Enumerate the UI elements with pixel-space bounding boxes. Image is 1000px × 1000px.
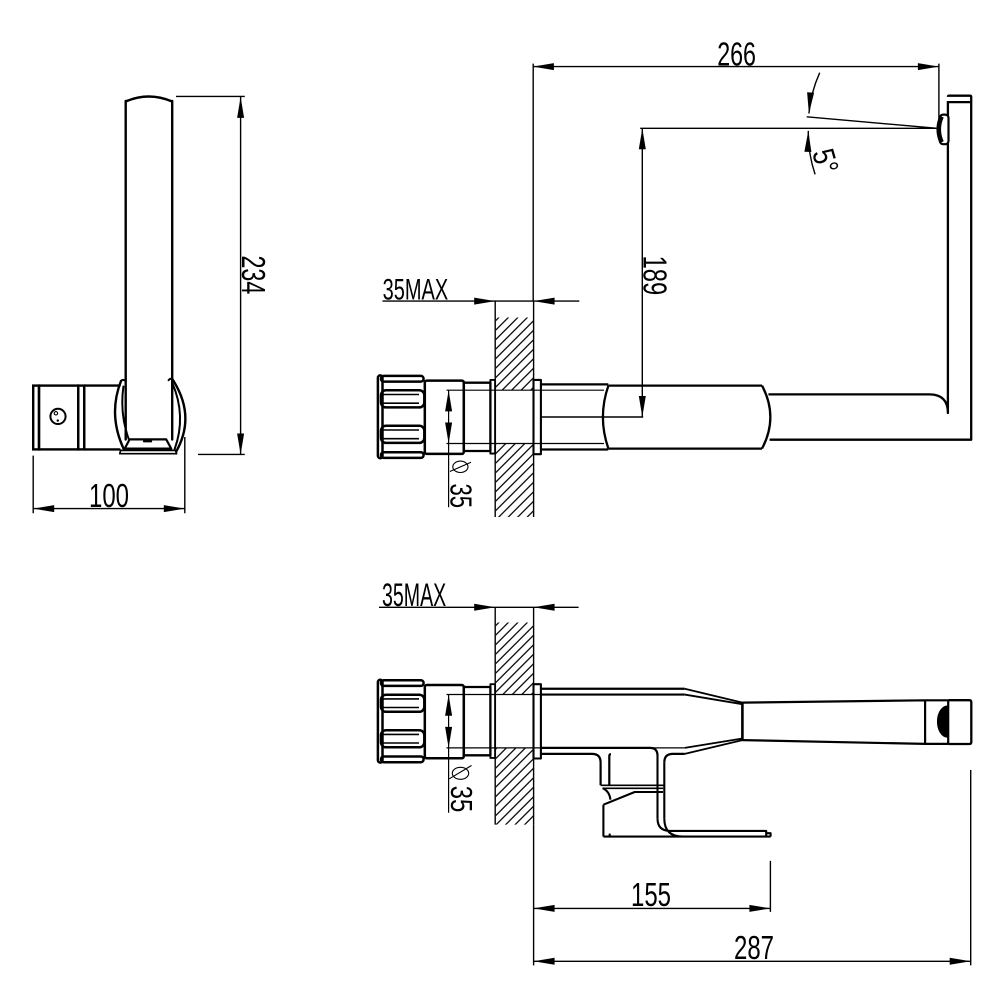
svg-text:100: 100 bbox=[89, 477, 129, 514]
svg-text:266: 266 bbox=[717, 35, 756, 72]
svg-text:35MAX: 35MAX bbox=[383, 274, 449, 307]
svg-text:155: 155 bbox=[631, 876, 671, 913]
svg-text:189: 189 bbox=[637, 256, 674, 296]
svg-text:35: 35 bbox=[444, 484, 479, 509]
svg-text:35: 35 bbox=[444, 786, 479, 813]
svg-text:234: 234 bbox=[235, 256, 272, 295]
svg-text:35MAX: 35MAX bbox=[382, 577, 446, 613]
svg-text:287: 287 bbox=[734, 929, 774, 966]
